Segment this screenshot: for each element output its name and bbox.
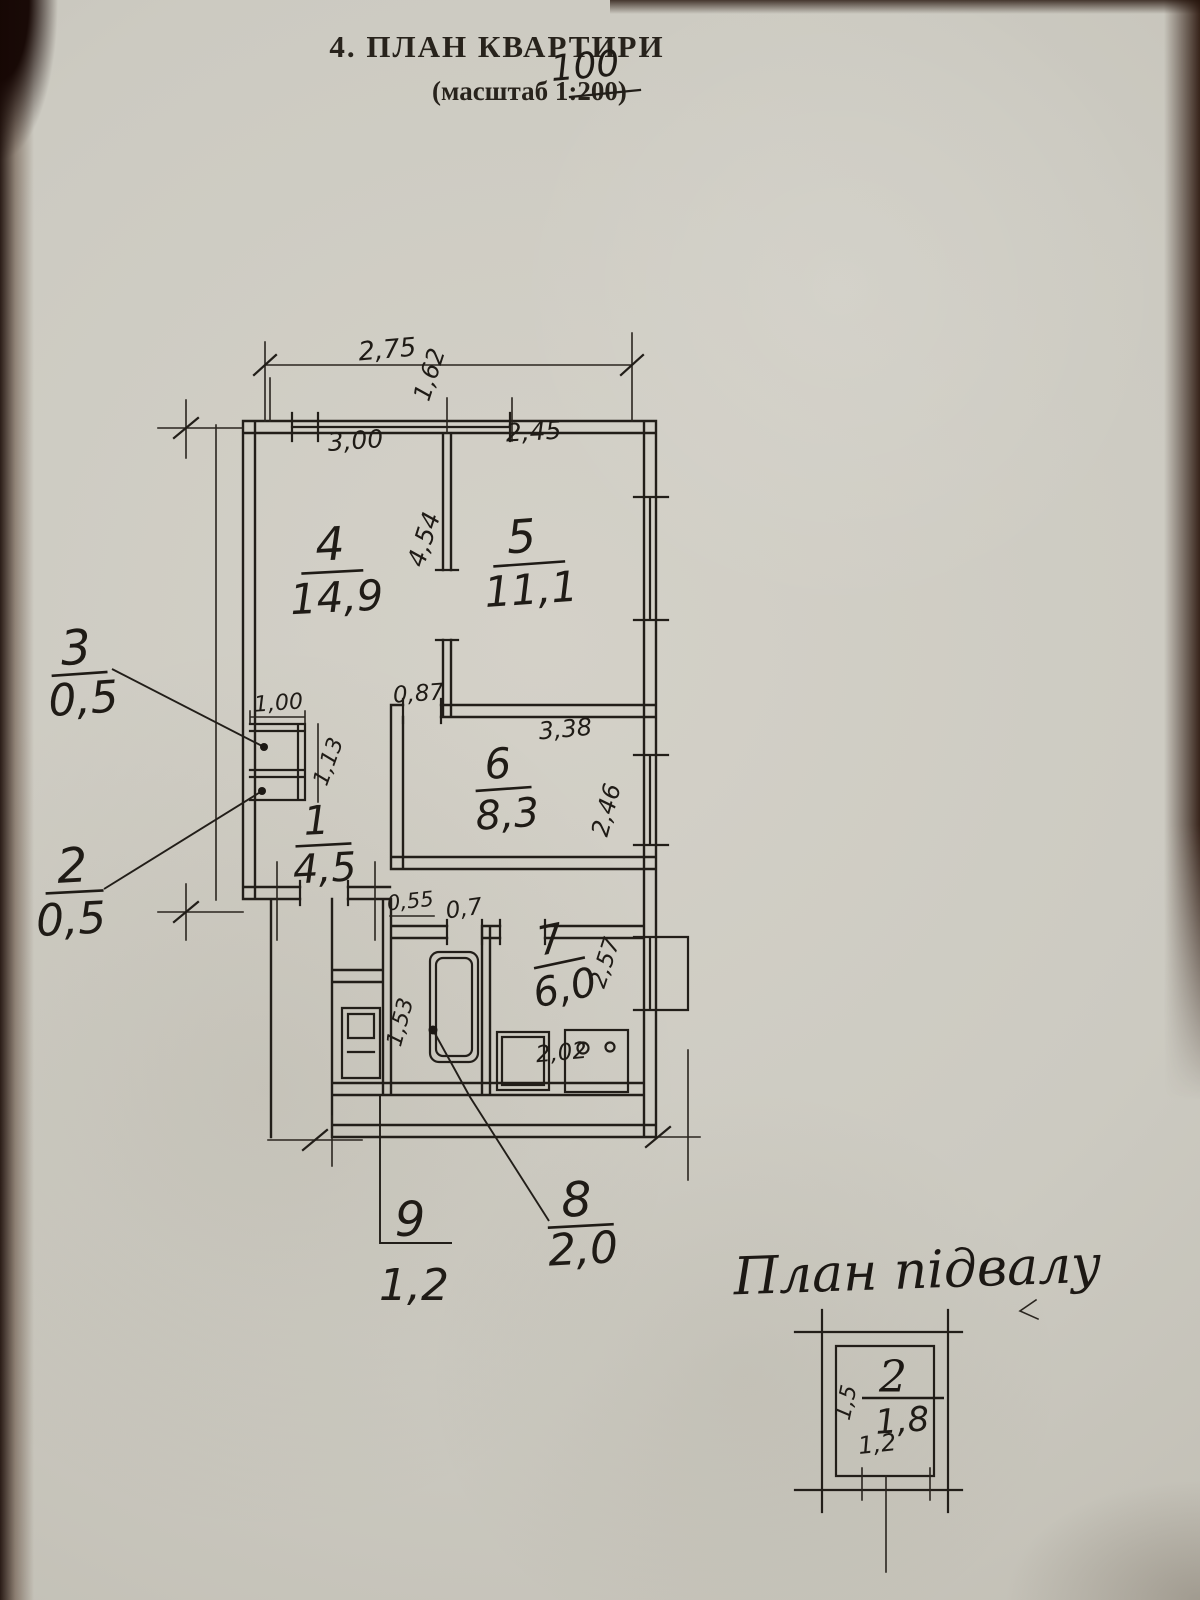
callout-9-label: 9 1,2 <box>379 1192 449 1311</box>
svg-text:11,1: 11,1 <box>483 562 580 617</box>
basement-title-checkmark <box>1020 1300 1038 1319</box>
callout-2-label: 2 0,5 <box>32 836 107 947</box>
apartment-plan-drawing: 4. ПЛАН КВАРТИРИ (масштаб 1:200) 100 <box>0 0 1200 1600</box>
svg-text:3: 3 <box>59 619 93 677</box>
room-4-label: 4 14,9 <box>286 514 385 624</box>
dim-room4-depth: 4,54 <box>402 508 447 570</box>
callout-2-dot <box>258 787 266 795</box>
room-6-label: 6 8,3 <box>470 737 540 840</box>
dim-room6-door: 0,87 <box>392 679 445 709</box>
toilet <box>342 1008 380 1078</box>
svg-text:6: 6 <box>483 738 513 789</box>
svg-text:1: 1 <box>302 798 330 845</box>
callout-3-leader <box>112 669 264 747</box>
dim-room4-width: 3,00 <box>327 424 385 457</box>
dim-room6-window: 2,46 <box>586 780 627 839</box>
dim-room6-width: 3,38 <box>537 713 593 746</box>
svg-text:0,5: 0,5 <box>35 892 108 947</box>
svg-text:1,2: 1,2 <box>379 1260 449 1311</box>
closet-outline <box>250 724 305 800</box>
callout-8-label: 8 2,0 <box>544 1170 619 1277</box>
svg-text:4: 4 <box>314 516 346 571</box>
dim-kitchen-width: 2,02 <box>535 1038 588 1068</box>
svg-text:8: 8 <box>560 1171 593 1229</box>
svg-text:9: 9 <box>395 1192 426 1248</box>
dim-top-width: 2,75 <box>357 333 417 368</box>
callout-3-label: 3 0,5 <box>43 617 120 727</box>
callout-labels: 3 0,5 2 0,5 8 2,0 9 1,2 <box>32 617 619 1311</box>
dim-closet-depth: 1,13 <box>309 734 349 789</box>
dim-hall-door: 0,55 <box>386 887 435 916</box>
dim-closet-width: 1,00 <box>253 689 304 717</box>
svg-text:14,9: 14,9 <box>289 570 385 624</box>
svg-text:2: 2 <box>56 837 89 895</box>
floor-plan: 4 14,9 5 11,1 6 8,3 7 6,0 1 <box>32 333 700 1311</box>
callout-3-dot <box>260 743 268 751</box>
svg-text:8,3: 8,3 <box>474 790 541 840</box>
callout-2-leader <box>104 791 262 889</box>
dim-room5-width: 2,45 <box>505 416 562 448</box>
window-room6 <box>634 755 668 845</box>
window-kitchen <box>634 937 688 1010</box>
room-5-label: 5 11,1 <box>479 506 580 617</box>
basement-plan: План підвалу 2 1,8 1,5 1,2 <box>732 1235 1103 1572</box>
closets <box>250 724 305 800</box>
svg-text:7: 7 <box>533 915 568 965</box>
window-room5 <box>634 497 668 620</box>
scale-correction-handwritten: 100 <box>549 43 621 90</box>
burner-icon <box>606 1043 615 1052</box>
windows <box>634 497 688 1010</box>
dim-bath-door: 0,7 <box>444 894 484 925</box>
basement-label: 2 1,8 1,5 1,2 <box>831 1352 944 1460</box>
svg-text:2,0: 2,0 <box>547 1222 620 1277</box>
basement-title: План підвалу <box>732 1235 1103 1308</box>
bathtub <box>430 952 478 1062</box>
room-1-label: 1 4,5 <box>289 796 357 893</box>
dim-kitchen-depth: 2,57 <box>585 934 626 991</box>
document-header: 4. ПЛАН КВАРТИРИ (масштаб 1:200) 100 <box>329 29 664 106</box>
svg-text:4,5: 4,5 <box>292 844 358 893</box>
svg-text:5: 5 <box>505 508 538 564</box>
basement-dim-width: 1,2 <box>857 1428 898 1460</box>
dim-bath-depth: 1,53 <box>382 995 419 1049</box>
svg-text:0,5: 0,5 <box>47 671 120 727</box>
svg-text:2: 2 <box>878 1352 907 1403</box>
callout-8-dot <box>429 1026 438 1035</box>
